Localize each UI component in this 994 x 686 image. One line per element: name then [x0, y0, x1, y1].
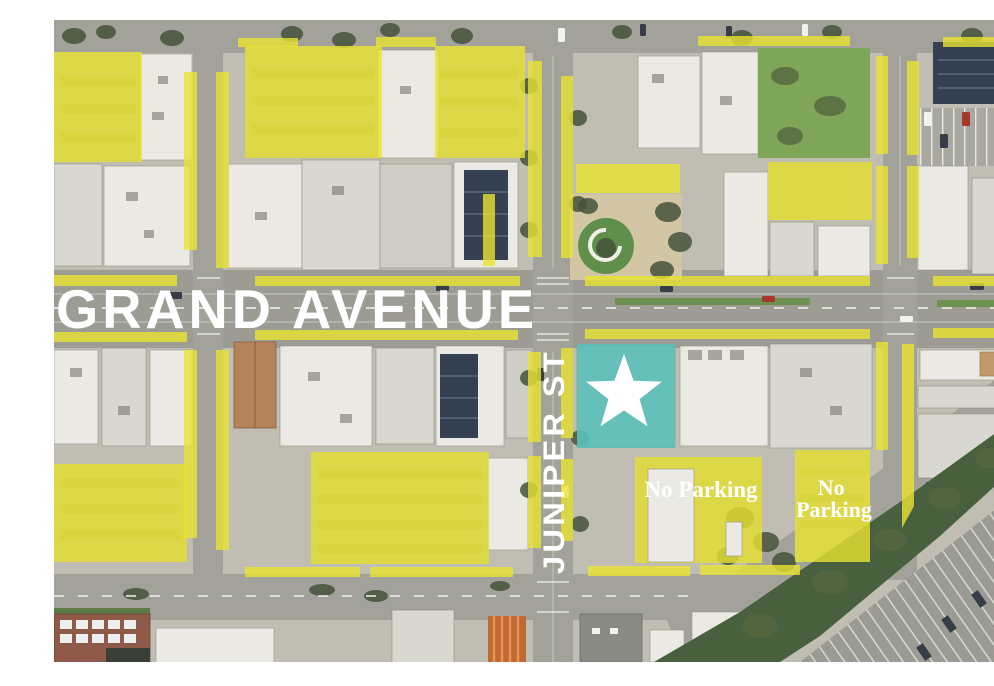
parking-highlight: [54, 464, 187, 562]
parking-highlight: [311, 452, 489, 564]
parking-highlight: [245, 46, 382, 158]
lot-interior-building-small: [726, 522, 742, 556]
site-highlight: [577, 344, 675, 448]
grand-avenue-label: GRAND AVENUE: [56, 278, 538, 340]
juniper-st-label: JUNIPER ST: [538, 349, 571, 574]
parking-highlight: [576, 164, 680, 193]
aerial-map: GRAND AVENUE JUNIPER ST No Parking No Pa…: [40, 16, 994, 670]
aerial-parking-map-figure: GRAND AVENUE JUNIPER ST No Parking No Pa…: [40, 16, 994, 670]
no-parking-label-1: No Parking: [644, 477, 758, 502]
no-parking-label-2-line2: Parking: [796, 497, 872, 522]
parking-highlight: [768, 162, 872, 220]
parking-highlight: [54, 52, 142, 162]
parking-highlight: [435, 46, 525, 158]
